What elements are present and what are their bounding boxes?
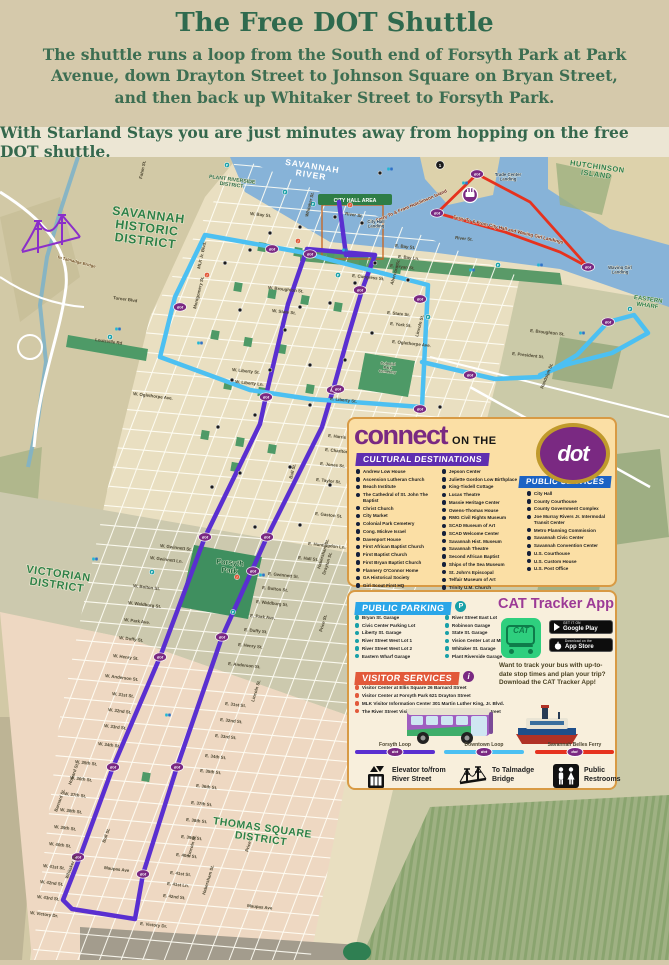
bullet-icon — [356, 529, 360, 533]
dot-stop-badge: dot — [171, 763, 184, 771]
list-item: Flannery O'Connor Home — [356, 568, 438, 574]
svg-text:dot: dot — [202, 535, 209, 540]
bullet-icon — [445, 631, 449, 635]
bullet-icon — [442, 485, 446, 489]
destination-marker — [438, 405, 442, 409]
bullet-icon — [355, 615, 359, 619]
bullet-icon — [356, 485, 360, 489]
list-item: First Bryan Baptist Church — [356, 560, 438, 566]
bullet-icon — [527, 567, 531, 571]
bus-stop-marker — [462, 182, 465, 185]
bullet-icon — [356, 506, 360, 510]
city-square — [305, 384, 314, 394]
brand-connect: connect — [354, 420, 447, 450]
bullet-icon — [356, 576, 360, 580]
bus-stop-marker — [197, 342, 200, 345]
destination-marker — [283, 328, 287, 332]
bullet-icon — [356, 560, 360, 564]
cat-tracker-title: CAT Tracker App — [497, 596, 615, 612]
bus-stop-marker — [115, 328, 118, 331]
list-item: GA Historical Society — [356, 575, 438, 581]
destination-marker — [343, 358, 347, 362]
public-services-list: City HallCounty CourthouseCounty Governm… — [527, 491, 611, 574]
hutchinson-marker: 1 — [436, 161, 444, 169]
bullet-icon — [442, 578, 446, 582]
list-item: Jepson Center — [442, 469, 536, 475]
dot-stop-badge: dot — [414, 295, 427, 303]
bullet-icon — [442, 524, 446, 528]
dot-stop-badge: dot — [464, 371, 477, 379]
destinations-section: connectON THE dot CULTURAL DESTINATIONS … — [347, 417, 617, 587]
svg-text:dot: dot — [474, 172, 481, 177]
bullet-icon — [356, 568, 360, 572]
page-title: The Free DOT Shuttle — [0, 8, 669, 38]
bullet-icon — [527, 559, 531, 563]
list-item: Ships of the Sea Museum — [442, 562, 536, 568]
city-square — [300, 295, 309, 305]
bullet-icon — [442, 554, 446, 558]
destination-marker — [406, 278, 410, 282]
bullet-icon — [356, 545, 360, 549]
bullet-icon — [442, 516, 446, 520]
route-legend: Forsyth LoopdotDowntown LoopdotSavannah … — [349, 742, 615, 764]
destination-marker — [298, 305, 302, 309]
bullet-icon — [356, 493, 360, 497]
list-item: Savannah Hist. Museum — [442, 539, 536, 545]
dot-logo: dot — [536, 423, 610, 484]
svg-text:dot: dot — [269, 247, 276, 252]
list-item: Colonial Park Cemetery — [356, 521, 438, 527]
bullet-icon — [527, 507, 531, 511]
belles-ferry-image — [514, 704, 580, 746]
bridge-item: To Talmadge Bridge — [459, 763, 534, 789]
list-item: Beach Institute — [356, 484, 438, 490]
info-icon: i — [463, 671, 474, 682]
bullet-icon — [356, 537, 360, 541]
list-item: Liberty St. Garage — [355, 630, 439, 636]
list-item: SCAD Museum of Art — [442, 523, 536, 529]
dot-stop-badge: dot — [216, 633, 229, 641]
destination-marker — [268, 231, 272, 235]
svg-text:dot: dot — [417, 407, 424, 412]
list-item: First Baptist Church — [356, 552, 438, 558]
list-item: River Street West Lot 2 — [355, 646, 439, 652]
dot-stop-badge: dot — [261, 533, 274, 541]
dot-stop-badge: dot — [354, 286, 367, 294]
dot-stop-badge: dot — [471, 170, 484, 178]
bullet-icon — [527, 491, 531, 495]
svg-text:dot: dot — [250, 569, 257, 574]
google-play-badge[interactable]: GET IT ONGoogle Play — [549, 620, 613, 634]
city-square — [141, 772, 150, 782]
dot-stop-badge: dot — [137, 870, 150, 878]
city-square — [235, 437, 244, 447]
legend-item: Savannah Belles Ferrydot — [535, 742, 614, 754]
play-icon — [554, 623, 560, 631]
svg-text:i: i — [207, 273, 208, 277]
area-label: Waving GirlLanding — [608, 265, 632, 274]
parking-col-1: Bryan St. GarageCivic Center Parking Lot… — [355, 615, 439, 661]
svg-text:dot: dot — [417, 297, 424, 302]
city-square — [267, 444, 276, 454]
area-label: City HallLanding — [367, 219, 384, 228]
restrooms-icon — [553, 763, 579, 789]
legend-item: Forsyth Loopdot — [355, 742, 435, 754]
bullet-icon — [355, 709, 359, 713]
dot-stop-badge: dot — [199, 533, 212, 541]
bullet-icon — [527, 551, 531, 555]
list-item: St. John's Episcopal — [442, 570, 536, 576]
dot-stop-badge: dot — [602, 318, 615, 326]
list-item: City Hall — [527, 491, 611, 497]
bullet-icon — [356, 552, 360, 556]
city-square — [243, 337, 252, 347]
dot-stop-badge: dot — [582, 263, 595, 271]
brand-on-the: ON THE — [452, 435, 497, 447]
restrooms-label: Public Restrooms — [584, 767, 621, 785]
svg-text:i: i — [298, 239, 299, 243]
list-item: Ascension Lutheran Church — [356, 477, 438, 483]
bullet-icon — [442, 531, 446, 535]
brand-row: connectON THE dot — [354, 422, 610, 449]
svg-text:dot: dot — [264, 535, 271, 540]
list-item: Visitor Center at Ellis Square 26 Barnar… — [355, 685, 527, 691]
list-item: Telfair Museum of Art — [442, 577, 536, 583]
list-item: River Street West Lot 1 — [355, 638, 439, 644]
bullet-icon — [442, 500, 446, 504]
cultural-destinations-header: CULTURAL DESTINATIONS — [355, 453, 489, 466]
bus-stop-marker — [259, 574, 262, 577]
bullet-icon — [356, 514, 360, 518]
destination-marker — [230, 378, 234, 382]
svg-text:dot: dot — [140, 872, 147, 877]
bullet-icon — [355, 685, 359, 689]
svg-text:dot: dot — [219, 635, 226, 640]
list-item: Metro Planning Commission — [527, 528, 611, 534]
list-item: Christ Church — [356, 506, 438, 512]
bullet-icon — [355, 639, 359, 643]
list-item: Cong. Mickve Israel — [356, 529, 438, 535]
bullet-icon — [356, 477, 360, 481]
bus-stop-marker — [537, 264, 540, 267]
list-item: County Government Complex — [527, 506, 611, 512]
list-item: Davenport House — [356, 537, 438, 543]
bullet-icon — [442, 562, 446, 566]
promo-strip: With Starland Stays you are just minutes… — [0, 127, 669, 157]
svg-text:dot: dot — [177, 305, 184, 310]
bullet-icon — [445, 654, 449, 658]
bus-stop-marker — [469, 269, 472, 272]
elevator-icon — [365, 763, 387, 789]
destination-marker — [308, 403, 312, 407]
bullet-icon — [356, 469, 360, 473]
dot-stop-badge: dot — [304, 250, 317, 258]
list-item: Girl Scout First HQ — [356, 583, 438, 589]
list-item: U.S. Post Office — [527, 566, 611, 572]
public-parking-header-row: PUBLIC PARKINGP — [355, 598, 466, 616]
connect-on-the-dot-panel: connectON THE dot CULTURAL DESTINATIONS … — [347, 417, 617, 790]
svg-text:dot: dot — [307, 252, 314, 257]
destination-marker — [298, 523, 302, 527]
elevator-item: Elevator to/from River Street — [365, 763, 446, 789]
bullet-icon — [356, 522, 360, 526]
bridge-label: To Talmadge Bridge — [492, 767, 534, 785]
svg-text:dot: dot — [157, 655, 164, 660]
destination-marker — [378, 171, 382, 175]
destination-marker — [328, 301, 332, 305]
destination-marker — [308, 363, 312, 367]
dot-stop-badge: dot — [266, 245, 279, 253]
destination-marker — [238, 471, 242, 475]
svg-text:i: i — [237, 575, 238, 579]
list-item: Massie Heritage Center — [442, 500, 536, 506]
list-item: Owens-Thomas House — [442, 508, 536, 514]
bullet-icon — [442, 477, 446, 481]
dot-stop-badge: dot — [247, 567, 260, 575]
bullet-icon — [527, 544, 531, 548]
bullet-icon — [355, 654, 359, 658]
page-header: The Free DOT Shuttle The shuttle runs a … — [0, 0, 669, 127]
svg-text:dot: dot — [335, 387, 342, 392]
bullet-icon — [355, 693, 359, 697]
bus-stop-marker — [342, 249, 345, 252]
destination-marker — [268, 368, 272, 372]
list-item: Andrew Low House — [356, 469, 438, 475]
bullet-icon — [355, 646, 359, 650]
bridge-icon — [459, 763, 487, 789]
list-item: Savannah Civic Center — [527, 535, 611, 541]
dot-stop-badge: dot — [332, 385, 345, 393]
bullet-icon — [355, 631, 359, 635]
svg-text:dot: dot — [605, 320, 612, 325]
list-item: Savannah Convention Center — [527, 543, 611, 549]
bus-stop-marker — [387, 168, 390, 171]
visitor-services-header-row: VISITOR SERVICESi — [355, 668, 474, 686]
list-item: U.S. Courthouse — [527, 551, 611, 557]
destination-marker — [370, 331, 374, 335]
bullet-icon — [527, 528, 531, 532]
bullet-icon — [445, 623, 449, 627]
destination-marker — [238, 308, 242, 312]
dot-stop-badge: dot — [431, 209, 444, 217]
list-item: First African Baptist Church — [356, 544, 438, 550]
elevator-label: Elevator to/from River Street — [392, 767, 446, 785]
legend-item: Downtown Loopdot — [444, 742, 524, 754]
bullet-icon — [442, 547, 446, 551]
bullet-icon — [527, 515, 531, 519]
bullet-icon — [445, 639, 449, 643]
bullet-icon — [442, 539, 446, 543]
bullet-icon — [527, 536, 531, 540]
bullet-icon — [356, 583, 360, 587]
destination-marker — [253, 525, 257, 529]
parking-icon: P — [455, 601, 466, 612]
list-item: SCAD Welcome Center — [442, 531, 536, 537]
destination-marker — [210, 485, 214, 489]
bullet-icon — [442, 508, 446, 512]
destination-marker — [248, 248, 252, 252]
app-store-badge[interactable]: Download on theApp Store — [549, 638, 613, 652]
city-square — [200, 430, 209, 440]
list-item: County Courthouse — [527, 499, 611, 505]
svg-text:dot: dot — [467, 373, 474, 378]
list-item: Joe Murray Rivers Jr. Intermodal Transit… — [527, 514, 611, 525]
svg-text:dot: dot — [110, 765, 117, 770]
public-parking-header: PUBLIC PARKING — [354, 602, 452, 615]
bullet-icon — [355, 623, 359, 627]
list-item: Second African Baptist — [442, 554, 536, 560]
svg-text:dot: dot — [357, 288, 364, 293]
dot-stop-badge: dot — [260, 393, 273, 401]
svg-text:dot: dot — [434, 211, 441, 216]
destination-marker — [216, 425, 220, 429]
list-item: RMG Civil Rights Museum — [442, 515, 536, 521]
bus-stop-marker — [92, 558, 95, 561]
dot-stop-badge: dot — [414, 405, 427, 413]
list-item: Visitor Center at Forsyth Park 621 Drayt… — [355, 693, 527, 699]
dot-shuttle-bus-image — [401, 700, 497, 746]
bullet-icon — [527, 499, 531, 503]
bus-stop-marker — [579, 332, 582, 335]
bus-stop-marker — [165, 714, 168, 717]
restrooms-item: Public Restrooms — [553, 763, 621, 789]
cat-app-icon: CAT — [501, 618, 541, 658]
bullet-icon — [445, 646, 449, 650]
list-item: Lucas Theatre — [442, 492, 536, 498]
list-item: City Market — [356, 513, 438, 519]
promo-text: With Starland Stays you are just minutes… — [0, 123, 669, 161]
bullet-icon — [442, 493, 446, 497]
bullet-icon — [442, 469, 446, 473]
svg-text:i: i — [350, 203, 351, 207]
forsyth-park — [180, 545, 262, 619]
list-item: Bryan St. Garage — [355, 615, 439, 621]
city-square — [210, 330, 219, 340]
destination-marker — [223, 261, 227, 265]
destination-marker — [333, 215, 337, 219]
visitor-services-header: VISITOR SERVICES — [354, 672, 459, 685]
bullet-icon — [442, 570, 446, 574]
list-item: Civic Center Parking Lot — [355, 623, 439, 629]
dot-stop-badge: dot — [107, 763, 120, 771]
destination-marker — [353, 281, 357, 285]
svg-text:dot: dot — [174, 765, 181, 770]
page: { "header": { "title": "The Free DOT Shu… — [0, 0, 669, 960]
list-item: Savannah Theatre — [442, 546, 536, 552]
bullet-icon — [445, 615, 449, 619]
list-item: Eastern Wharf Garage — [355, 654, 439, 660]
list-item: The Cathedral of St. John The Baptist — [356, 492, 438, 503]
city-square — [233, 282, 242, 292]
bullet-icon — [355, 701, 359, 705]
destination-marker — [373, 261, 377, 265]
svg-text:dot: dot — [585, 265, 592, 270]
city-square — [333, 302, 342, 312]
event-icon — [463, 188, 478, 203]
dot-stop-badge: dot — [174, 303, 187, 311]
list-item: U.S. Custom House — [527, 559, 611, 565]
destination-marker — [298, 225, 302, 229]
svg-text:dot: dot — [263, 395, 270, 400]
destination-marker — [360, 221, 364, 225]
destination-marker — [253, 413, 257, 417]
apple-icon — [554, 641, 562, 650]
parking-visitor-section: PUBLIC PARKINGP Bryan St. GarageCivic Ce… — [347, 590, 617, 790]
intro-paragraph: The shuttle runs a loop from the South e… — [35, 44, 635, 108]
dot-stop-badge: dot — [154, 653, 167, 661]
